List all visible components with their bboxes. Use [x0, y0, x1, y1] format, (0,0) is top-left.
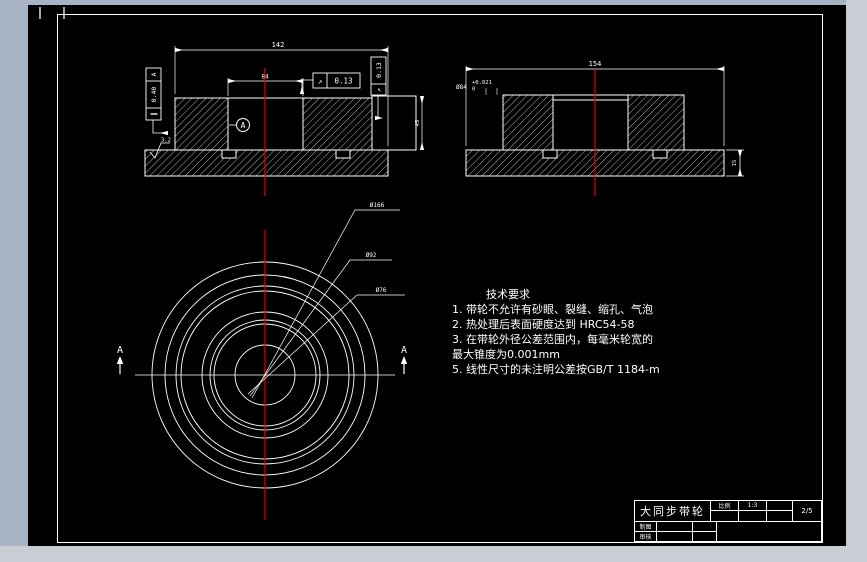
left-width-dim: 142 — [272, 41, 285, 49]
callout-inner-dia: Ø76 — [376, 287, 387, 294]
fcf-parallel-datum: A — [150, 72, 158, 76]
technical-notes-heading: 技术要求 — [486, 287, 660, 302]
technical-note-line: 3. 在带轮外径公差范围内，每毫米轮宽的 — [452, 332, 660, 347]
title-block-empty-cell — [711, 511, 739, 521]
right-width-dim: 154 — [589, 60, 602, 68]
scale-label: 比例 — [711, 501, 739, 511]
callout-outer-dia: Ø166 — [370, 202, 385, 209]
title-block-empty-cell — [739, 511, 767, 521]
drawn-by-label: 制图 — [635, 522, 657, 532]
cad-drawing: 142 84 A A 0.40 ∥ 3.2 ↗ 0.13 0.13 ↗ — [0, 0, 867, 562]
right-bore-tol-lower: 0 — [472, 87, 475, 93]
checked-by-label: 审核 — [635, 532, 657, 542]
technical-notes: 技术要求 1. 带轮不允许有砂眼、裂缝、缩孔、气泡 2. 热处理后表面硬度达到 … — [452, 287, 660, 377]
section-label-left: A — [117, 345, 123, 356]
technical-note-line: 1. 带轮不允许有砂眼、裂缝、缩孔、气泡 — [452, 302, 660, 317]
fcf-parallel-value: 0.40 — [150, 87, 158, 103]
title-block-empty-cell — [657, 522, 693, 532]
technical-note-line: 2. 热处理后表面硬度达到 HRC54-58 — [452, 317, 660, 332]
datum-a-label: A — [241, 121, 246, 130]
runout-icon-v: ↗ — [375, 88, 383, 92]
left-section-view: 142 84 A A 0.40 ∥ 3.2 ↗ 0.13 0.13 ↗ — [145, 41, 422, 196]
technical-note-line: 最大锥度为0.001mm — [452, 347, 660, 362]
front-view: A A Ø166 Ø92 Ø76 — [117, 202, 407, 520]
title-block: 大同步带轮 比例 1:3 2/5 制图 审核 — [634, 500, 822, 542]
callout-mid-dia: Ø92 — [366, 252, 377, 259]
sheet-number: 2/5 — [793, 501, 821, 521]
section-label-right: A — [401, 345, 407, 356]
title-block-empty-cell — [767, 511, 793, 521]
roughness-value: 3.2 — [161, 138, 171, 144]
title-block-empty-cell — [693, 522, 717, 532]
title-block-empty-cell — [717, 522, 821, 541]
left-side-dim: 45 — [415, 120, 421, 127]
fcf-runout-h-value: 0.13 — [334, 77, 352, 86]
parallelism-icon: ∥ — [150, 112, 158, 116]
title-block-empty-cell — [657, 532, 693, 542]
right-thickness-dim: 15 — [732, 160, 738, 167]
right-bore-dia: Ø84 — [456, 84, 467, 91]
title-block-empty-cell — [693, 532, 717, 542]
part-name: 大同步带轮 — [635, 501, 711, 521]
sheet-ticks — [40, 7, 64, 19]
right-section-view: 154 Ø84 +0.021 0 15 — [456, 60, 744, 196]
fcf-runout-v-value: 0.13 — [375, 62, 383, 78]
runout-icon-h: ↗ — [318, 77, 323, 86]
scale-value: 1:3 — [739, 501, 767, 511]
title-block-empty-cell — [767, 501, 793, 511]
technical-note-line: 5. 线性尺寸的未注明公差按GB/T 1184-m — [452, 362, 660, 377]
right-bore-tol-upper: +0.021 — [472, 80, 492, 86]
